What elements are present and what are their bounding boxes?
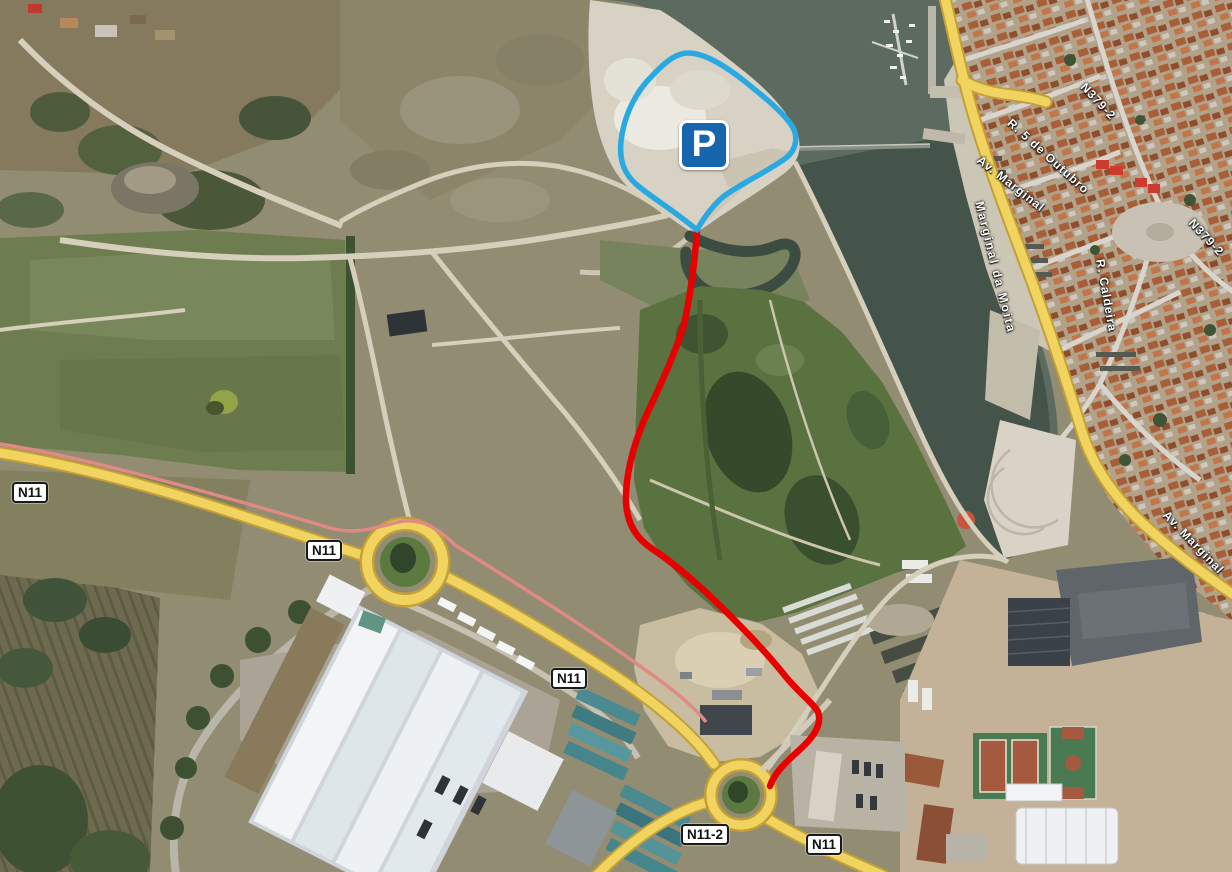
road-shield-n11-east: N11	[806, 834, 842, 855]
satellite-map[interactable]: P N11 N11 N11 N11-2 N11 R. 5 de Outubro …	[0, 0, 1232, 872]
road-shield-n11-mid: N11	[306, 540, 342, 561]
road-shield-n11-2: N11-2	[681, 824, 729, 845]
road-shield-n11-center: N11	[551, 668, 587, 689]
satellite-map-image	[0, 0, 1232, 872]
road-shield-n11-west: N11	[12, 482, 48, 503]
parking-icon: P	[679, 120, 729, 170]
parking-icon-letter: P	[682, 123, 726, 167]
